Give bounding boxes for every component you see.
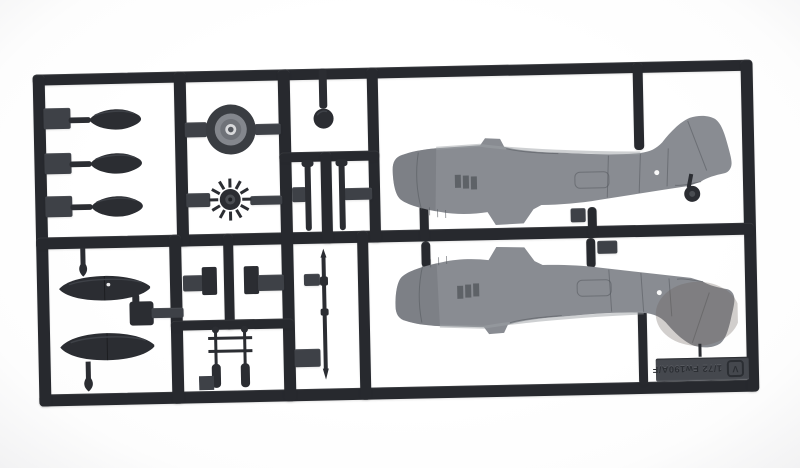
sprue-gate-blade-2 — [44, 153, 71, 175]
gear-strut-1-knob — [301, 160, 313, 167]
gear-leg-pin-lower — [80, 361, 98, 392]
sprue-gate-panel-1 — [183, 275, 203, 291]
cannon-barrel-rod — [315, 248, 334, 380]
sprue-gate-blade-1 — [43, 108, 70, 130]
sprue-gate-cowl-left — [185, 122, 207, 137]
sprue-gate-blade-3 — [45, 196, 72, 218]
scale-label-text: 1/72 Fw190A/F — [652, 364, 722, 375]
propeller-blade-3 — [70, 192, 145, 221]
drop-tank-2 — [59, 330, 156, 363]
sprue-gate-fan-left — [186, 193, 210, 207]
sprue-gate-fan-right — [250, 195, 282, 205]
sprue-gate-cowl-right — [255, 123, 281, 135]
ball-part-stem — [319, 69, 328, 109]
flat-panel-part-1 — [202, 267, 218, 295]
antenna-frame — [198, 323, 263, 392]
sprue-photo: V 1/72 Fw190A/F — [0, 0, 800, 468]
sprue-frame: V 1/72 Fw190A/F — [0, 0, 800, 468]
gear-strut-1 — [304, 163, 311, 231]
gear-strut-2-knob — [335, 159, 347, 166]
runner-bottom — [39, 380, 757, 407]
runner-cell3-vertical — [320, 151, 333, 243]
propeller-blade-2 — [69, 149, 144, 178]
tail-wheel-ball — [312, 107, 334, 129]
propeller-blade-1 — [68, 105, 143, 134]
tail-pin — [698, 344, 701, 357]
engine-cowling-ring — [204, 103, 257, 156]
runner-divider-e — [223, 233, 235, 329]
runner-divider-a — [174, 71, 190, 246]
runner-divider-c-bottom — [357, 231, 372, 400]
molded-scale-label: V 1/72 Fw190A/F — [656, 357, 749, 382]
gear-leg-pin-upper — [74, 247, 92, 277]
sprue-gate-strut-2 — [344, 188, 372, 201]
flat-panel-part-2 — [244, 266, 260, 294]
fuselage-half-port — [390, 237, 739, 368]
gear-strut-2 — [338, 162, 345, 230]
brand-logo-badge: V — [727, 360, 744, 377]
runner-divider-d — [169, 235, 185, 404]
engine-cooling-fan — [208, 177, 253, 222]
sprue-gate-rack — [151, 308, 183, 319]
runner-top — [33, 60, 751, 86]
fuselage-half-starboard — [388, 113, 736, 232]
sprue-gate-panel-2 — [258, 274, 284, 291]
bomb-rack-block — [129, 301, 153, 325]
